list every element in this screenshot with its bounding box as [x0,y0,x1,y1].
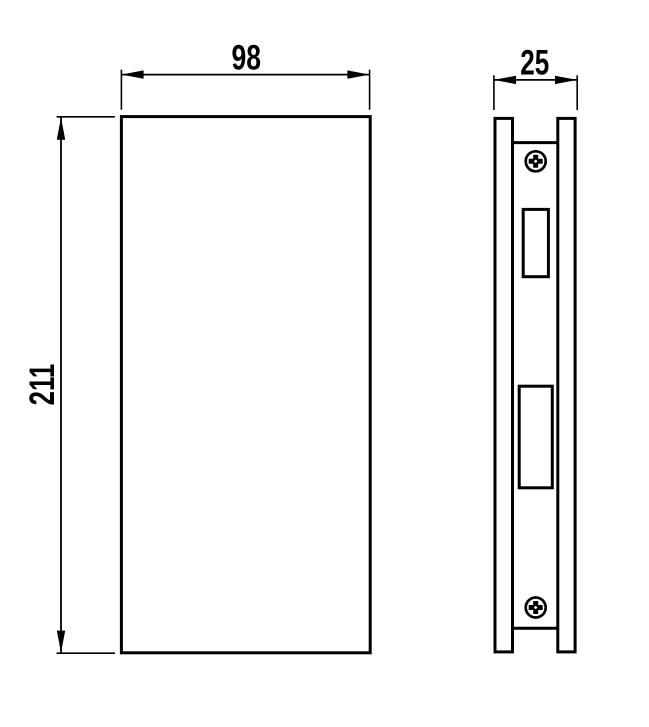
svg-text:25: 25 [520,44,549,83]
svg-text:211: 211 [23,364,62,406]
svg-text:98: 98 [232,39,262,78]
